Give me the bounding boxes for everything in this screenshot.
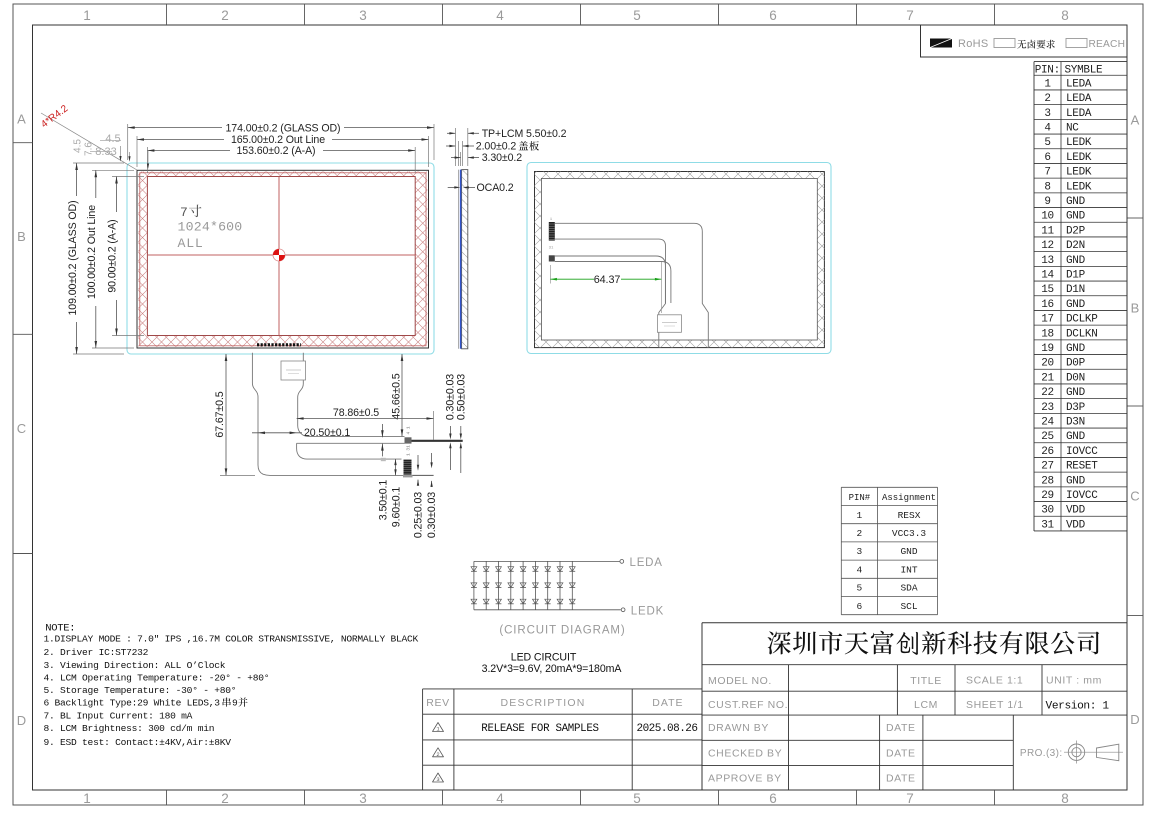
svg-text:29: 29	[1041, 490, 1054, 502]
svg-text:D: D	[1130, 712, 1139, 727]
svg-text:2: 2	[1044, 93, 1050, 105]
svg-text:C: C	[1130, 489, 1139, 504]
svg-text:DESCRIPTION: DESCRIPTION	[501, 697, 586, 709]
svg-text:3. Viewing Direction: ALL O’Cl: 3. Viewing Direction: ALL O’Clock	[44, 660, 226, 671]
svg-text:2.00±0.2: 2.00±0.2	[476, 141, 517, 153]
svg-text:7: 7	[906, 8, 914, 23]
svg-text:9. ESD test: Contact:±4KV,Air:: 9. ESD test: Contact:±4KV,Air:±8KV	[44, 737, 232, 748]
svg-text:OCA0.2: OCA0.2	[477, 182, 514, 194]
svg-text:0.25±0.03: 0.25±0.03	[413, 492, 425, 538]
svg-text:A: A	[17, 112, 26, 127]
svg-text:3.50±0.1: 3.50±0.1	[377, 480, 389, 521]
svg-text:NC: NC	[1066, 123, 1079, 135]
svg-text:(CIRCUIT DIAGRAM): (CIRCUIT DIAGRAM)	[499, 625, 625, 637]
svg-text:INT: INT	[900, 564, 917, 575]
svg-text:67.67±0.5: 67.67±0.5	[214, 391, 226, 437]
svg-text:LEDK: LEDK	[1066, 152, 1092, 164]
svg-text:8: 8	[1061, 8, 1069, 23]
svg-text:LEDK: LEDK	[1066, 167, 1092, 179]
svg-text:109.00±0.2 (GLASS OD): 109.00±0.2 (GLASS OD)	[67, 200, 79, 315]
svg-text:21: 21	[1041, 372, 1054, 384]
svg-text:LEDA: LEDA	[630, 557, 663, 569]
svg-text:DCLKN: DCLKN	[1066, 328, 1098, 340]
svg-text:LCM: LCM	[914, 699, 938, 711]
svg-text:D1P: D1P	[1066, 270, 1086, 282]
svg-text:SDA: SDA	[900, 583, 917, 594]
svg-text:D1N: D1N	[1066, 284, 1085, 296]
svg-text:8: 8	[1044, 181, 1050, 193]
svg-text:Assignment: Assignment	[882, 493, 936, 503]
svg-text:SCL: SCL	[900, 601, 917, 612]
svg-text:6 Backlight Type:29 White LEDS: 6 Backlight Type:29 White LEDS,3	[44, 698, 221, 709]
svg-text:2. Driver IC:ST7232: 2. Driver IC:ST7232	[44, 647, 149, 658]
svg-text:GND: GND	[1066, 211, 1086, 223]
svg-text:1 31: 1 31	[406, 445, 412, 456]
svg-text:4: 4	[496, 791, 504, 806]
svg-text:6: 6	[857, 601, 863, 612]
svg-text:GND: GND	[900, 546, 917, 557]
svg-text:2: 2	[221, 791, 229, 806]
svg-text:1: 1	[83, 8, 91, 23]
svg-text:2025.08.26: 2025.08.26	[636, 723, 697, 735]
svg-text:VDD: VDD	[1066, 519, 1086, 531]
svg-text:GND: GND	[1066, 299, 1086, 311]
svg-text:6: 6	[769, 8, 777, 23]
svg-text:5: 5	[857, 583, 863, 594]
svg-text:3: 3	[359, 791, 367, 806]
svg-text:PRO.(3):: PRO.(3):	[1020, 748, 1063, 759]
svg-text:3.2V*3=9.6V, 20mA*9=180mA: 3.2V*3=9.6V, 20mA*9=180mA	[482, 663, 623, 675]
svg-text:SHEET 1/1: SHEET 1/1	[966, 699, 1024, 711]
svg-text:22: 22	[1041, 387, 1054, 399]
svg-text:8: 8	[1061, 791, 1069, 806]
svg-text:31: 31	[549, 247, 554, 251]
svg-text:ALL: ALL	[178, 236, 204, 251]
svg-text:SYMBLE: SYMBLE	[1065, 64, 1104, 76]
svg-text:153.60±0.2 (A-A): 153.60±0.2 (A-A)	[236, 145, 315, 157]
svg-text:PIN:: PIN:	[1035, 64, 1060, 76]
svg-text:0.30±0.03: 0.30±0.03	[426, 492, 438, 538]
svg-text:3: 3	[359, 8, 367, 23]
svg-text:9: 9	[1044, 196, 1050, 208]
svg-text:26: 26	[1041, 446, 1054, 458]
svg-text:4: 4	[1044, 123, 1051, 135]
svg-text:LEDK: LEDK	[1066, 137, 1092, 149]
svg-text:D2P: D2P	[1066, 225, 1086, 237]
svg-text:MODEL NO.: MODEL NO.	[708, 675, 772, 687]
svg-text:DRAWN BY: DRAWN BY	[708, 722, 769, 734]
svg-text:REV: REV	[426, 697, 449, 709]
svg-text:1: 1	[1044, 78, 1051, 90]
svg-text:1: 1	[83, 791, 91, 806]
svg-text:GND: GND	[1066, 475, 1086, 487]
svg-text:8. LCM Brightness: 300 cd/m m: 8. LCM Brightness: 300 cd/m min	[44, 723, 215, 734]
svg-text:APPROVE BY: APPROVE BY	[708, 773, 782, 785]
svg-text:90.00±0.2 (A-A): 90.00±0.2 (A-A)	[107, 219, 119, 292]
svg-text:4 1: 4 1	[406, 426, 412, 434]
svg-text:LEDK: LEDK	[631, 605, 664, 617]
svg-text:DATE: DATE	[886, 747, 916, 759]
svg-text:45.66±0.5: 45.66±0.5	[391, 373, 403, 419]
svg-text:7: 7	[906, 791, 914, 806]
svg-text:GND: GND	[1066, 255, 1086, 267]
svg-text:9: 9	[232, 698, 238, 709]
svg-text:GND: GND	[1066, 431, 1086, 443]
svg-text:1024*600: 1024*600	[178, 220, 243, 235]
svg-text:LED CIRCUIT: LED CIRCUIT	[511, 652, 577, 664]
svg-text:LEDK: LEDK	[1066, 181, 1092, 193]
svg-text:TITLE: TITLE	[910, 675, 942, 687]
svg-text:64.37: 64.37	[594, 274, 621, 286]
svg-text:4*R4.2: 4*R4.2	[39, 103, 70, 130]
svg-text:1.DISPLAY MODE : 7.0″ IPS ,16.: 1.DISPLAY MODE : 7.0″ IPS ,16.7M COLOR S…	[44, 633, 419, 644]
svg-text:7.6: 7.6	[84, 142, 95, 156]
svg-text:20.50±0.1: 20.50±0.1	[304, 427, 350, 439]
svg-text:30: 30	[1041, 505, 1054, 517]
svg-text:4.5: 4.5	[105, 133, 120, 145]
svg-text:A: A	[1131, 113, 1140, 128]
svg-text:4.5: 4.5	[73, 139, 84, 153]
svg-text:LEDA: LEDA	[1066, 93, 1092, 105]
svg-text:20: 20	[1041, 358, 1054, 370]
svg-text:19: 19	[1041, 343, 1054, 355]
svg-text:17: 17	[1041, 314, 1054, 326]
svg-text:7: 7	[180, 205, 188, 220]
svg-text:78.86±0.5: 78.86±0.5	[333, 407, 379, 419]
svg-text:D0N: D0N	[1066, 372, 1085, 384]
svg-text:16: 16	[1041, 299, 1054, 311]
svg-text:14: 14	[1041, 270, 1054, 282]
svg-text:PIN#: PIN#	[849, 493, 871, 503]
svg-text:VDD: VDD	[1066, 505, 1086, 517]
svg-text:D3P: D3P	[1066, 402, 1086, 414]
svg-text:10: 10	[1041, 211, 1054, 223]
svg-text:SCALE 1:1: SCALE 1:1	[966, 674, 1023, 686]
svg-text:VCC3.3: VCC3.3	[892, 528, 927, 539]
svg-text:2: 2	[857, 528, 863, 539]
svg-text:1: 1	[550, 218, 553, 222]
svg-text:24: 24	[1041, 417, 1054, 429]
svg-text:DATE: DATE	[652, 697, 683, 709]
svg-text:1: 1	[857, 510, 863, 521]
svg-text:3: 3	[1044, 108, 1050, 120]
svg-text:IOVCC: IOVCC	[1066, 446, 1098, 458]
svg-text:6: 6	[769, 791, 777, 806]
svg-text:5: 5	[633, 791, 641, 806]
svg-text:4: 4	[496, 8, 504, 23]
svg-text:7. BL Input Current: 180 mA: 7. BL Input Current: 180 mA	[44, 710, 193, 721]
svg-text:3.30±0.2: 3.30±0.2	[482, 152, 523, 164]
svg-text:LEDA: LEDA	[1066, 108, 1092, 120]
svg-text:4: 4	[857, 564, 863, 575]
svg-text:4. LCM Operating Temperature:: 4. LCM Operating Temperature: -20° - +80…	[44, 672, 270, 683]
svg-text:31: 31	[1041, 519, 1054, 531]
svg-text:REACH: REACH	[1089, 39, 1126, 50]
svg-text:DCLKP: DCLKP	[1066, 314, 1098, 326]
svg-text:5. Storage Temperature: -30° -: 5. Storage Temperature: -30° - +80°	[44, 685, 237, 696]
svg-text:23: 23	[1041, 402, 1054, 414]
svg-text:Version: 1: Version: 1	[1046, 700, 1110, 712]
svg-text:9.60±0.1: 9.60±0.1	[390, 487, 402, 528]
svg-text:D0P: D0P	[1066, 358, 1086, 370]
svg-text:TP+LCM 5.50±0.2: TP+LCM 5.50±0.2	[482, 128, 567, 140]
svg-text:D2N: D2N	[1066, 240, 1085, 252]
svg-text:B: B	[17, 229, 26, 244]
svg-text:GND: GND	[1066, 343, 1086, 355]
svg-text:CHECKED BY: CHECKED BY	[708, 747, 782, 759]
svg-text:5: 5	[633, 8, 641, 23]
svg-text:RESET: RESET	[1066, 461, 1098, 473]
svg-text:GND: GND	[1066, 387, 1086, 399]
svg-text:DATE: DATE	[886, 722, 916, 734]
svg-text:25: 25	[1041, 431, 1054, 443]
svg-text:RESX: RESX	[898, 510, 921, 521]
svg-text:GND: GND	[1066, 196, 1086, 208]
svg-text:5: 5	[1044, 137, 1050, 149]
svg-text:UNIT : mm: UNIT : mm	[1046, 674, 1102, 686]
svg-text:3: 3	[857, 546, 863, 557]
svg-text:D: D	[17, 713, 26, 728]
svg-text:12: 12	[1041, 240, 1054, 252]
svg-text:B: B	[1131, 301, 1140, 316]
svg-text:IOVCC: IOVCC	[1066, 490, 1098, 502]
svg-text:2: 2	[221, 8, 229, 23]
svg-text:27: 27	[1041, 461, 1054, 473]
svg-text:18: 18	[1041, 328, 1054, 340]
svg-text:C: C	[17, 421, 26, 436]
svg-text:0.50±0.03: 0.50±0.03	[456, 374, 468, 420]
svg-text:6: 6	[1044, 152, 1050, 164]
svg-text:2: 2	[436, 751, 439, 758]
svg-text:D3N: D3N	[1066, 417, 1085, 429]
svg-text:7: 7	[1044, 167, 1050, 179]
svg-text:28: 28	[1041, 475, 1054, 487]
svg-text:15: 15	[1041, 284, 1054, 296]
svg-text:100.00±0.2 Out Line: 100.00±0.2 Out Line	[86, 205, 98, 299]
svg-text:3: 3	[436, 776, 439, 783]
svg-text:11: 11	[1041, 225, 1054, 237]
svg-text:13: 13	[1041, 255, 1054, 267]
svg-text:CUST.REF NO.: CUST.REF NO.	[708, 699, 788, 711]
svg-text:RoHS: RoHS	[958, 38, 989, 50]
svg-text:LEDA: LEDA	[1066, 78, 1092, 90]
svg-text:8.33: 8.33	[95, 146, 116, 158]
svg-text:DATE: DATE	[886, 773, 916, 785]
svg-text:174.00±0.2 (GLASS OD): 174.00±0.2 (GLASS OD)	[225, 122, 340, 134]
svg-text:RELEASE FOR SAMPLES: RELEASE FOR SAMPLES	[481, 723, 598, 735]
